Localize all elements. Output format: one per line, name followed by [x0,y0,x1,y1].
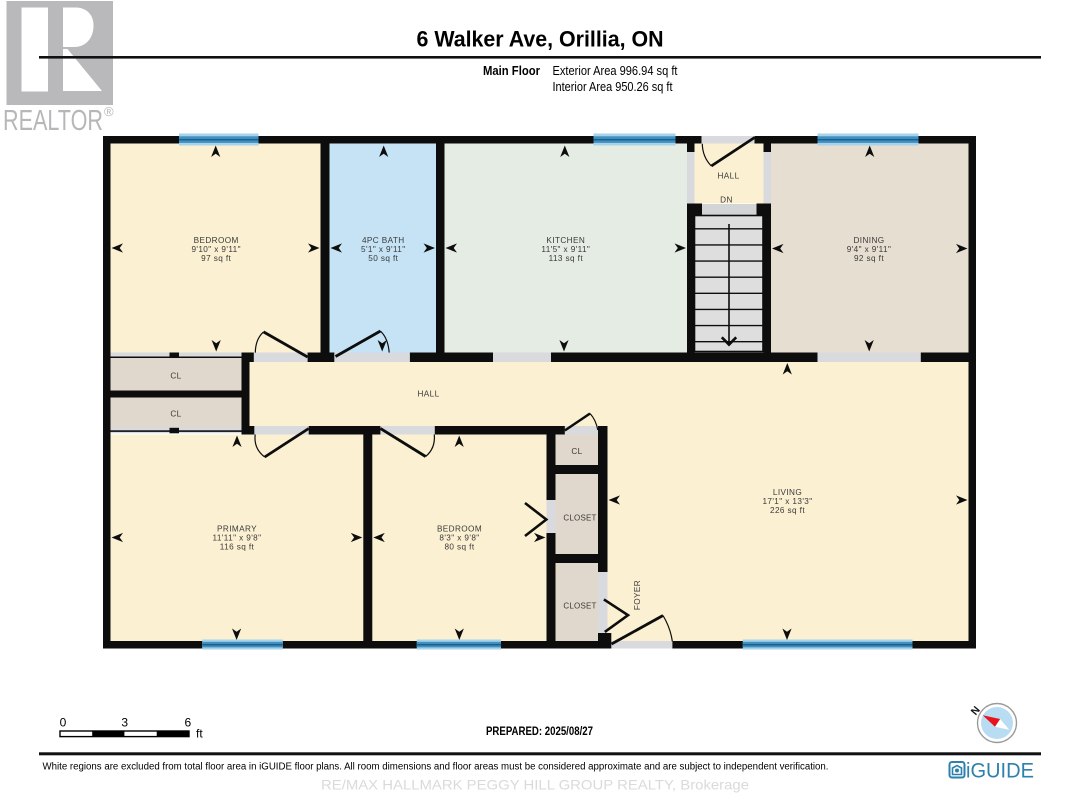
svg-text:226 sq ft: 226 sq ft [770,506,805,515]
svg-text:50 sq ft: 50 sq ft [368,254,398,263]
svg-text:17'1" x 13'3": 17'1" x 13'3" [762,497,812,506]
svg-text:3: 3 [121,716,128,730]
svg-text:PRIMARY: PRIMARY [217,525,257,534]
svg-text:®: ® [104,104,114,119]
svg-text:113 sq ft: 113 sq ft [549,254,584,263]
svg-text:FOYER: FOYER [633,580,642,610]
svg-text:BEDROOM: BEDROOM [194,236,239,245]
svg-text:KITCHEN: KITCHEN [546,236,585,245]
svg-text:6: 6 [184,716,191,730]
svg-text:CL: CL [170,372,181,381]
svg-text:PREPARED: 2025/08/27: PREPARED: 2025/08/27 [486,726,593,738]
svg-text:ft: ft [196,727,203,741]
svg-text:4PC BATH: 4PC BATH [362,236,405,245]
svg-text:Exterior Area 996.94 sq ft: Exterior Area 996.94 sq ft [553,64,678,78]
svg-text:LIVING: LIVING [773,488,802,497]
svg-text:CL: CL [170,410,181,419]
svg-text:92 sq ft: 92 sq ft [854,254,884,263]
svg-text:11'5" x 9'11": 11'5" x 9'11" [541,245,590,254]
svg-text:HALL: HALL [417,390,439,399]
svg-text:iGUIDE: iGUIDE [966,760,1034,783]
svg-text:CLOSET: CLOSET [563,602,596,611]
svg-text:116 sq ft: 116 sq ft [220,543,255,552]
svg-text:DN: DN [720,196,733,205]
svg-text:Interior Area 950.26 sq ft: Interior Area 950.26 sq ft [553,80,673,94]
svg-text:RE/MAX HALLMARK PEGGY HILL GRO: RE/MAX HALLMARK PEGGY HILL GROUP REALTY,… [321,777,749,793]
svg-text:DINING: DINING [853,236,884,245]
svg-text:6 Walker Ave, Orillia, ON: 6 Walker Ave, Orillia, ON [417,27,664,52]
svg-text:White regions are excluded fro: White regions are excluded from total fl… [43,762,829,773]
svg-text:BEDROOM: BEDROOM [437,525,482,534]
svg-text:REALTOR: REALTOR [3,105,103,137]
svg-text:5'1" x 9'11": 5'1" x 9'11" [361,245,406,254]
svg-text:CL: CL [571,447,582,456]
svg-text:97 sq ft: 97 sq ft [201,254,231,263]
svg-text:0: 0 [60,716,67,730]
svg-text:9'4" x 9'11": 9'4" x 9'11" [847,245,892,254]
svg-text:HALL: HALL [717,172,739,181]
svg-text:CLOSET: CLOSET [563,514,596,523]
svg-text:8'3" x 9'8": 8'3" x 9'8" [439,534,479,543]
svg-text:11'11" x 9'8": 11'11" x 9'8" [213,534,262,543]
svg-text:80 sq ft: 80 sq ft [444,543,474,552]
svg-text:Main Floor: Main Floor [483,64,540,78]
svg-text:9'10" x 9'11": 9'10" x 9'11" [191,245,241,254]
